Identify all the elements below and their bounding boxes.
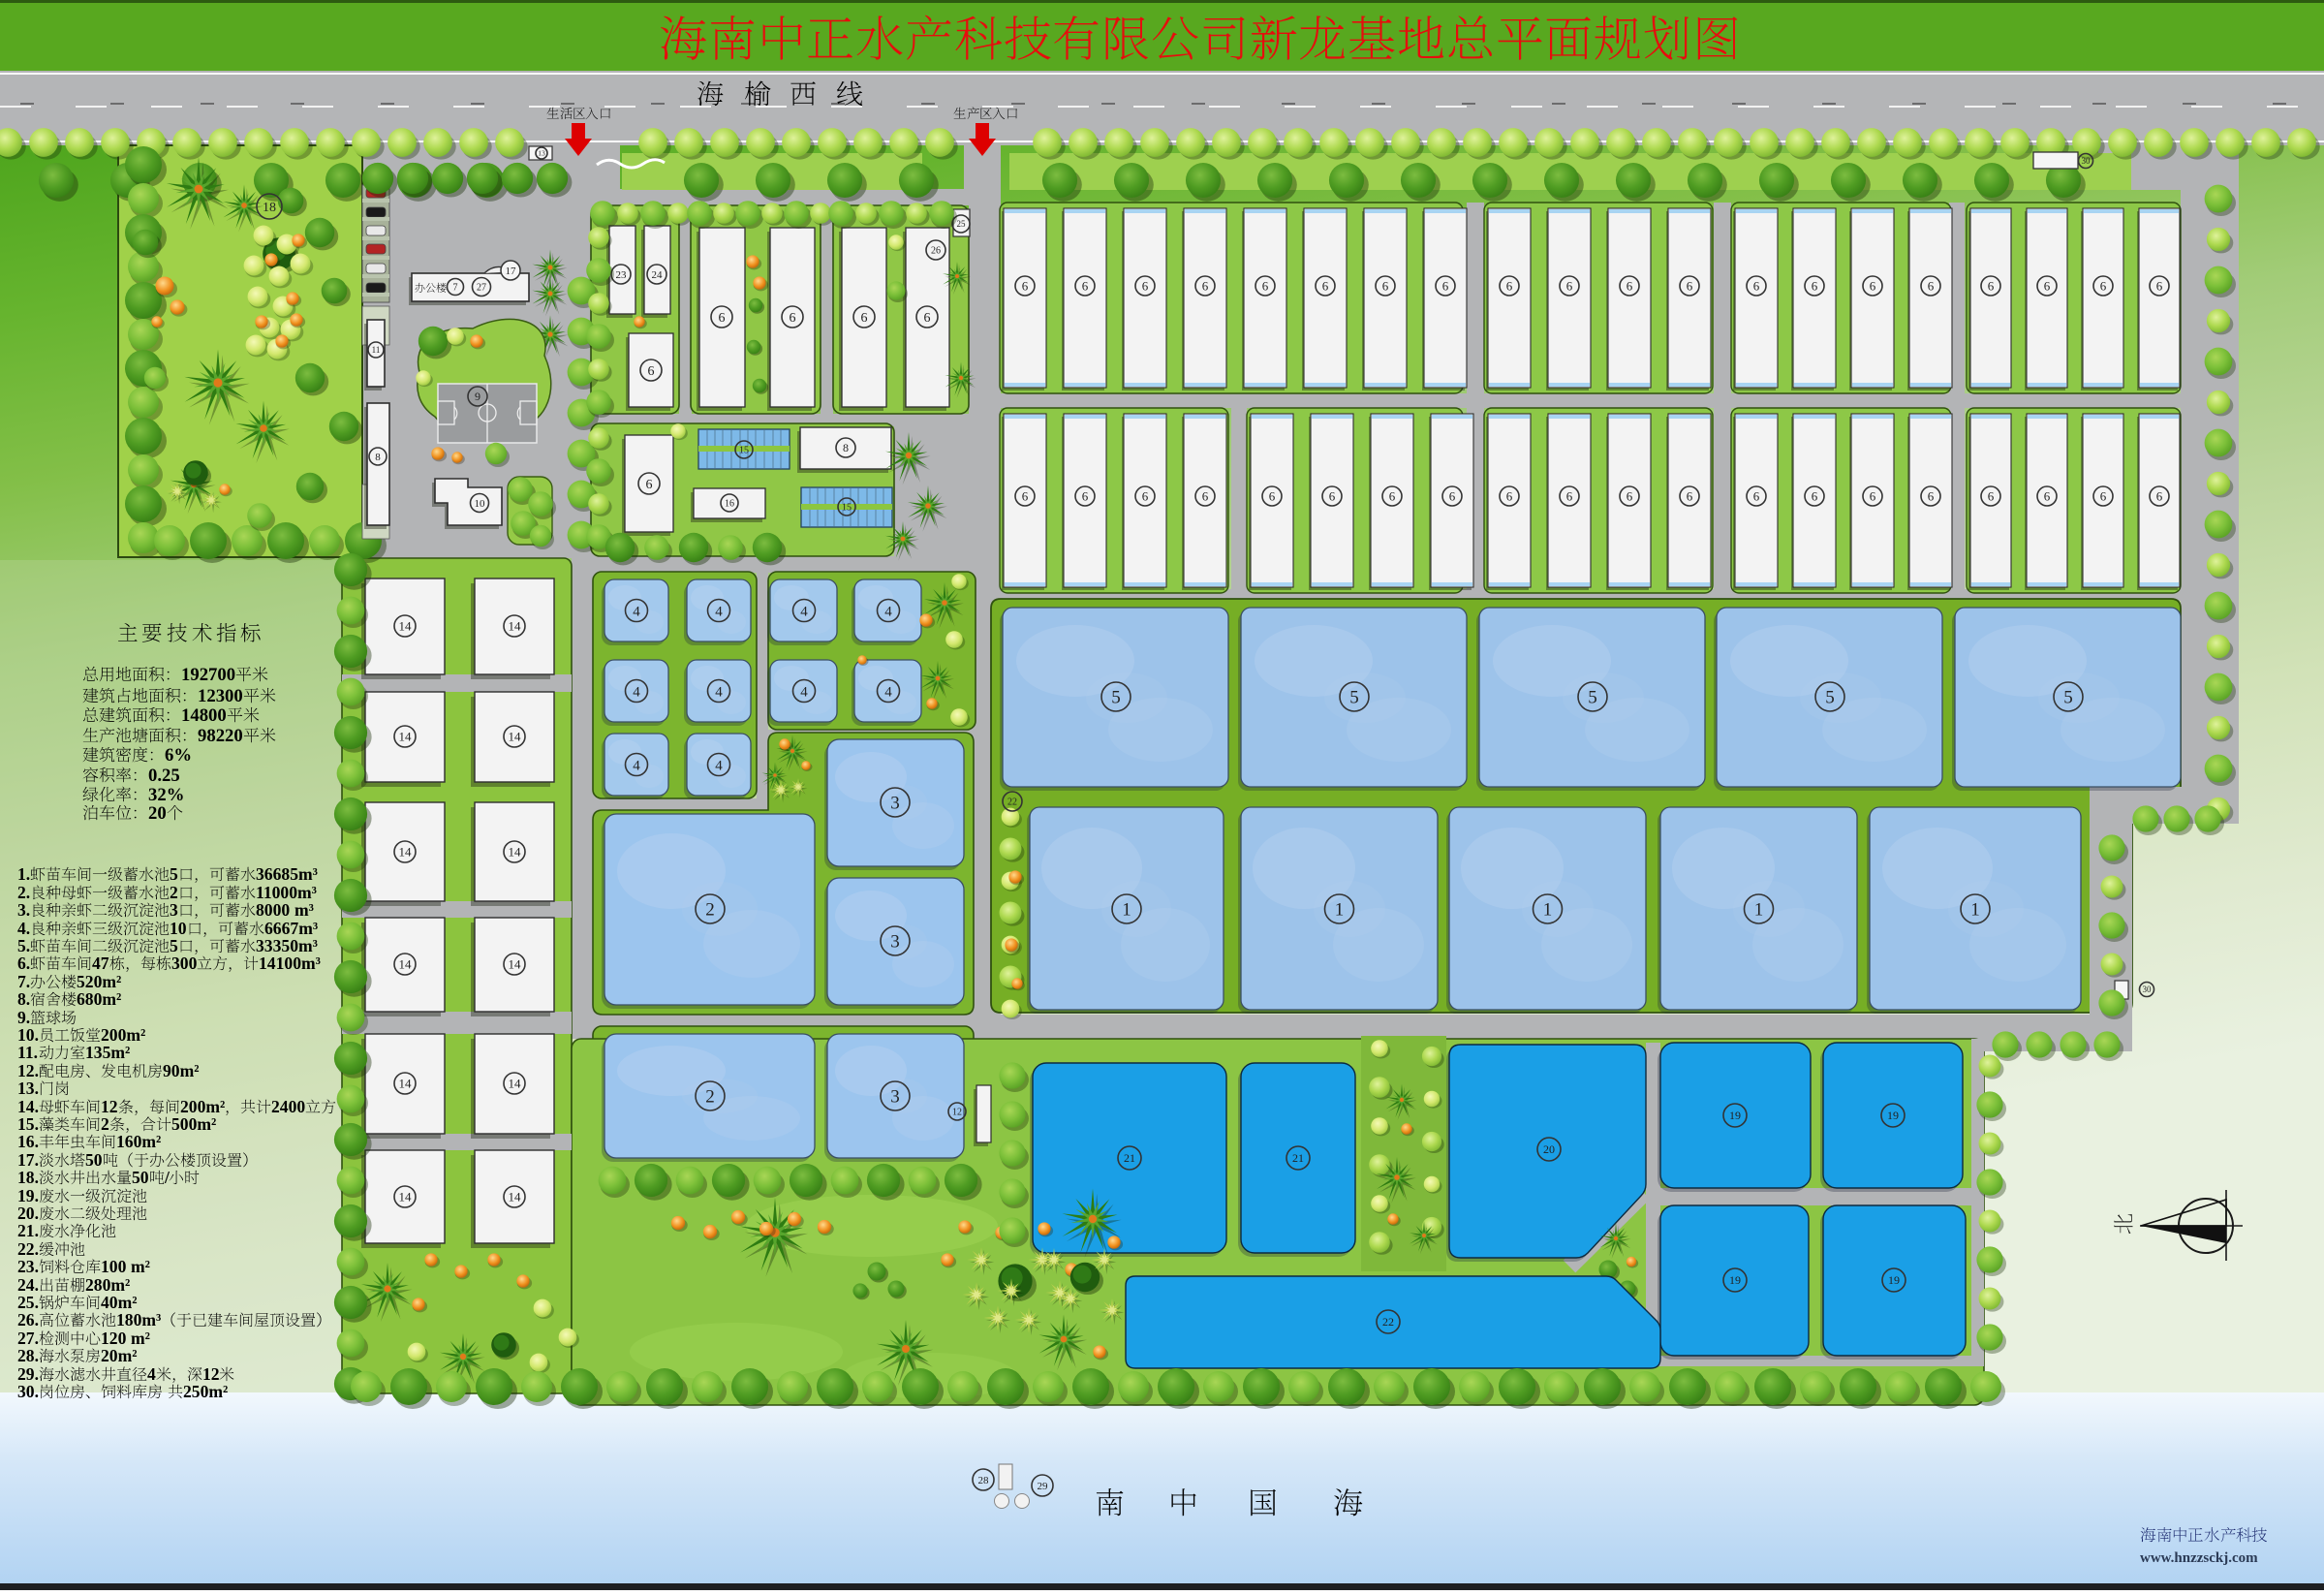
svg-text:4: 4 [147, 1364, 156, 1384]
svg-text:50: 50 [85, 1150, 103, 1170]
svg-text:33350m³: 33350m³ [256, 936, 318, 955]
svg-text:23: 23 [616, 269, 628, 281]
svg-text:6: 6 [1506, 489, 1513, 504]
svg-text:28: 28 [978, 1475, 990, 1486]
svg-text:26: 26 [931, 246, 941, 257]
svg-text:14: 14 [399, 1077, 413, 1091]
svg-text:8: 8 [375, 452, 381, 463]
svg-text:300: 300 [171, 954, 198, 973]
svg-text:6: 6 [1382, 279, 1389, 294]
svg-text:1: 1 [1754, 900, 1764, 921]
svg-text:12: 12 [952, 1108, 962, 1118]
svg-text:m²: m² [131, 1257, 150, 1276]
svg-text:100: 100 [101, 1257, 127, 1276]
svg-text:1: 1 [1543, 900, 1553, 921]
svg-text:680m²: 680m² [77, 989, 121, 1009]
svg-text:24: 24 [652, 269, 664, 281]
svg-text:1: 1 [1335, 900, 1345, 921]
svg-text:90m²: 90m² [163, 1061, 200, 1080]
svg-text:520m²: 520m² [77, 972, 121, 991]
svg-text:4: 4 [800, 604, 808, 619]
svg-text:6: 6 [1687, 489, 1693, 504]
svg-text:6: 6 [2156, 489, 2163, 504]
svg-text:3: 3 [890, 1087, 900, 1108]
svg-text:6: 6 [1627, 489, 1633, 504]
svg-text:3.: 3. [17, 900, 30, 920]
svg-text:14: 14 [399, 730, 413, 744]
svg-text:6: 6 [1627, 279, 1633, 294]
svg-text:6: 6 [861, 311, 868, 326]
svg-text:180m³: 180m³ [116, 1310, 161, 1329]
svg-text:6: 6 [2044, 489, 2051, 504]
svg-text:4: 4 [800, 684, 808, 700]
svg-text:24.: 24. [17, 1275, 39, 1295]
svg-text:8: 8 [843, 441, 849, 454]
svg-text:47: 47 [92, 954, 109, 973]
svg-text:6: 6 [1322, 279, 1329, 294]
svg-text:0.25: 0.25 [148, 766, 180, 786]
svg-text:20: 20 [1543, 1142, 1555, 1156]
svg-text:21.: 21. [17, 1221, 39, 1240]
svg-text:5: 5 [170, 864, 178, 884]
svg-text:14: 14 [509, 845, 522, 860]
svg-text:6: 6 [2100, 279, 2107, 294]
svg-text:200m²: 200m² [101, 1025, 145, 1045]
svg-text:1: 1 [1970, 900, 1980, 921]
svg-text:3: 3 [890, 794, 900, 814]
svg-text:14: 14 [399, 845, 413, 860]
svg-text:28.: 28. [17, 1346, 39, 1365]
svg-text:14.: 14. [17, 1097, 39, 1116]
svg-text:20m²: 20m² [101, 1346, 138, 1365]
svg-text:27.: 27. [17, 1329, 39, 1348]
svg-text:17.: 17. [17, 1150, 39, 1170]
svg-text:6667m³: 6667m³ [264, 919, 318, 938]
svg-text:26.: 26. [17, 1310, 39, 1329]
svg-text:6: 6 [924, 311, 931, 326]
svg-text:12300: 12300 [198, 686, 243, 706]
svg-text:21: 21 [1292, 1151, 1304, 1165]
svg-text:15: 15 [739, 446, 749, 456]
svg-text:280m²: 280m² [85, 1275, 130, 1295]
svg-text:4: 4 [633, 604, 640, 619]
svg-text:6: 6 [1442, 279, 1449, 294]
svg-text:18: 18 [263, 201, 276, 215]
svg-text:19.: 19. [17, 1186, 39, 1205]
svg-text:14: 14 [509, 957, 522, 972]
svg-text:6: 6 [1753, 279, 1760, 294]
svg-text:6: 6 [1269, 489, 1276, 504]
svg-text:19: 19 [1729, 1273, 1741, 1287]
svg-text:6: 6 [1142, 489, 1149, 504]
svg-text:6: 6 [1566, 279, 1573, 294]
svg-text:10: 10 [475, 498, 486, 510]
svg-text:160m²: 160m² [116, 1132, 161, 1151]
svg-text:30: 30 [2143, 985, 2153, 994]
svg-text:15.: 15. [17, 1114, 39, 1134]
svg-text:4.: 4. [17, 919, 30, 938]
svg-text:30.: 30. [17, 1382, 39, 1401]
svg-text:22: 22 [1007, 797, 1017, 808]
svg-text:14: 14 [399, 957, 413, 972]
svg-text:5: 5 [1588, 688, 1597, 708]
svg-text:192700: 192700 [181, 665, 235, 685]
svg-text:6: 6 [719, 311, 726, 326]
svg-text:6: 6 [1082, 489, 1089, 504]
svg-text:12: 12 [101, 1097, 118, 1116]
svg-text:13.: 13. [17, 1079, 39, 1098]
svg-text:2.: 2. [17, 883, 30, 902]
svg-text:4: 4 [715, 684, 723, 700]
svg-text:6: 6 [1262, 279, 1269, 294]
svg-text:36685m³: 36685m³ [256, 864, 318, 884]
svg-text:1: 1 [1122, 900, 1131, 921]
svg-text:6: 6 [2100, 489, 2107, 504]
svg-text:6: 6 [1812, 489, 1818, 504]
svg-text:6: 6 [1142, 279, 1149, 294]
svg-text:6: 6 [1753, 489, 1760, 504]
svg-text:22: 22 [1382, 1315, 1394, 1329]
svg-text:17: 17 [506, 266, 517, 277]
svg-text:40m²: 40m² [101, 1293, 138, 1312]
svg-text:9: 9 [475, 390, 480, 403]
svg-text:6: 6 [1082, 279, 1089, 294]
svg-text:10.: 10. [17, 1025, 39, 1045]
svg-text:20.: 20. [17, 1204, 39, 1223]
svg-text:6: 6 [1928, 279, 1935, 294]
svg-text:4: 4 [633, 684, 640, 700]
svg-text:6: 6 [2044, 279, 2051, 294]
svg-text:200m²: 200m² [180, 1097, 225, 1116]
svg-text:25: 25 [957, 219, 967, 229]
svg-text:29: 29 [1038, 1481, 1049, 1492]
svg-text:7.: 7. [17, 972, 30, 991]
svg-text:5: 5 [1825, 688, 1835, 708]
svg-text:6: 6 [1566, 489, 1573, 504]
svg-text:2: 2 [705, 900, 715, 921]
svg-text:7: 7 [453, 283, 458, 294]
svg-text:6: 6 [1022, 489, 1029, 504]
svg-text:14: 14 [509, 1190, 522, 1204]
svg-text:6: 6 [1988, 279, 1995, 294]
svg-text:6: 6 [1870, 279, 1876, 294]
svg-text:3: 3 [890, 932, 900, 953]
svg-text:6: 6 [1870, 489, 1876, 504]
svg-text:23.: 23. [17, 1257, 39, 1276]
svg-text:30: 30 [2082, 156, 2092, 166]
svg-text:6: 6 [1812, 279, 1818, 294]
svg-text:14: 14 [509, 619, 522, 634]
svg-text:4: 4 [715, 604, 723, 619]
svg-text:3: 3 [170, 900, 178, 920]
svg-text:4: 4 [884, 604, 892, 619]
svg-text:25.: 25. [17, 1293, 39, 1312]
svg-text:5: 5 [170, 936, 178, 955]
svg-text:500m²: 500m² [171, 1114, 216, 1134]
svg-text:5.: 5. [17, 936, 30, 955]
svg-text:6: 6 [1202, 279, 1209, 294]
svg-text:6: 6 [648, 364, 655, 379]
svg-text:8.: 8. [17, 989, 30, 1009]
svg-text:6: 6 [1022, 279, 1029, 294]
svg-text:19: 19 [1729, 1109, 1741, 1122]
svg-text:6: 6 [1506, 279, 1513, 294]
svg-text:22.: 22. [17, 1239, 39, 1259]
svg-text:6: 6 [646, 478, 653, 492]
svg-text:29.: 29. [17, 1364, 39, 1384]
svg-text:120: 120 [101, 1329, 127, 1348]
svg-text:14100m³: 14100m³ [259, 954, 321, 973]
svg-text:16.: 16. [17, 1132, 39, 1151]
svg-text:14: 14 [509, 730, 522, 744]
svg-text:11000m³: 11000m³ [256, 883, 317, 902]
svg-text:6: 6 [1449, 489, 1456, 504]
svg-text:6: 6 [1329, 489, 1336, 504]
svg-text:6%: 6% [165, 745, 192, 766]
svg-text:50: 50 [132, 1168, 149, 1187]
svg-text:14800: 14800 [181, 705, 227, 726]
svg-text:250m²: 250m² [183, 1382, 228, 1401]
svg-text:15: 15 [842, 503, 852, 514]
svg-text:11.: 11. [17, 1043, 38, 1062]
svg-text:5: 5 [2063, 688, 2073, 708]
svg-text:11: 11 [372, 345, 381, 355]
svg-text:98220: 98220 [198, 726, 243, 746]
svg-text:14: 14 [509, 1077, 522, 1091]
svg-text:19: 19 [1887, 1109, 1899, 1122]
svg-text:2: 2 [170, 883, 178, 902]
svg-text:135m²: 135m² [85, 1043, 130, 1062]
svg-text:4: 4 [884, 684, 892, 700]
svg-text:6: 6 [790, 311, 796, 326]
svg-text:14: 14 [399, 1190, 413, 1204]
svg-text:5: 5 [1111, 688, 1121, 708]
svg-text:16: 16 [725, 499, 734, 510]
svg-text:6.: 6. [17, 954, 30, 973]
svg-text:18.: 18. [17, 1168, 39, 1187]
svg-text:2400: 2400 [271, 1097, 305, 1116]
svg-text:12.: 12. [17, 1061, 39, 1080]
svg-text:m²: m² [131, 1329, 150, 1348]
svg-text:6: 6 [1988, 489, 1995, 504]
svg-text:21: 21 [1124, 1151, 1135, 1165]
svg-text:2: 2 [101, 1114, 109, 1134]
svg-text:5: 5 [1349, 688, 1359, 708]
svg-text:6: 6 [1389, 489, 1396, 504]
svg-text:6: 6 [1202, 489, 1209, 504]
svg-text:12: 12 [202, 1364, 220, 1384]
svg-text:32%: 32% [148, 785, 184, 805]
svg-text:13: 13 [538, 149, 545, 158]
svg-text:6: 6 [1928, 489, 1935, 504]
svg-text:9.: 9. [17, 1008, 30, 1027]
svg-text:6: 6 [2156, 279, 2163, 294]
svg-text:m³: m³ [294, 900, 314, 920]
svg-text:2: 2 [705, 1087, 715, 1108]
svg-text:20: 20 [148, 803, 167, 824]
svg-text:27: 27 [477, 283, 486, 294]
svg-text:10: 10 [170, 919, 187, 938]
svg-text:6: 6 [1687, 279, 1693, 294]
svg-text:1.: 1. [17, 864, 30, 884]
svg-text:8000: 8000 [256, 900, 290, 920]
svg-text:14: 14 [399, 619, 413, 634]
svg-text:4: 4 [633, 758, 640, 773]
svg-text:4: 4 [715, 758, 723, 773]
svg-text:www.hnzzsckj.com: www.hnzzsckj.com [2140, 1550, 2258, 1566]
svg-text:19: 19 [1888, 1273, 1900, 1287]
